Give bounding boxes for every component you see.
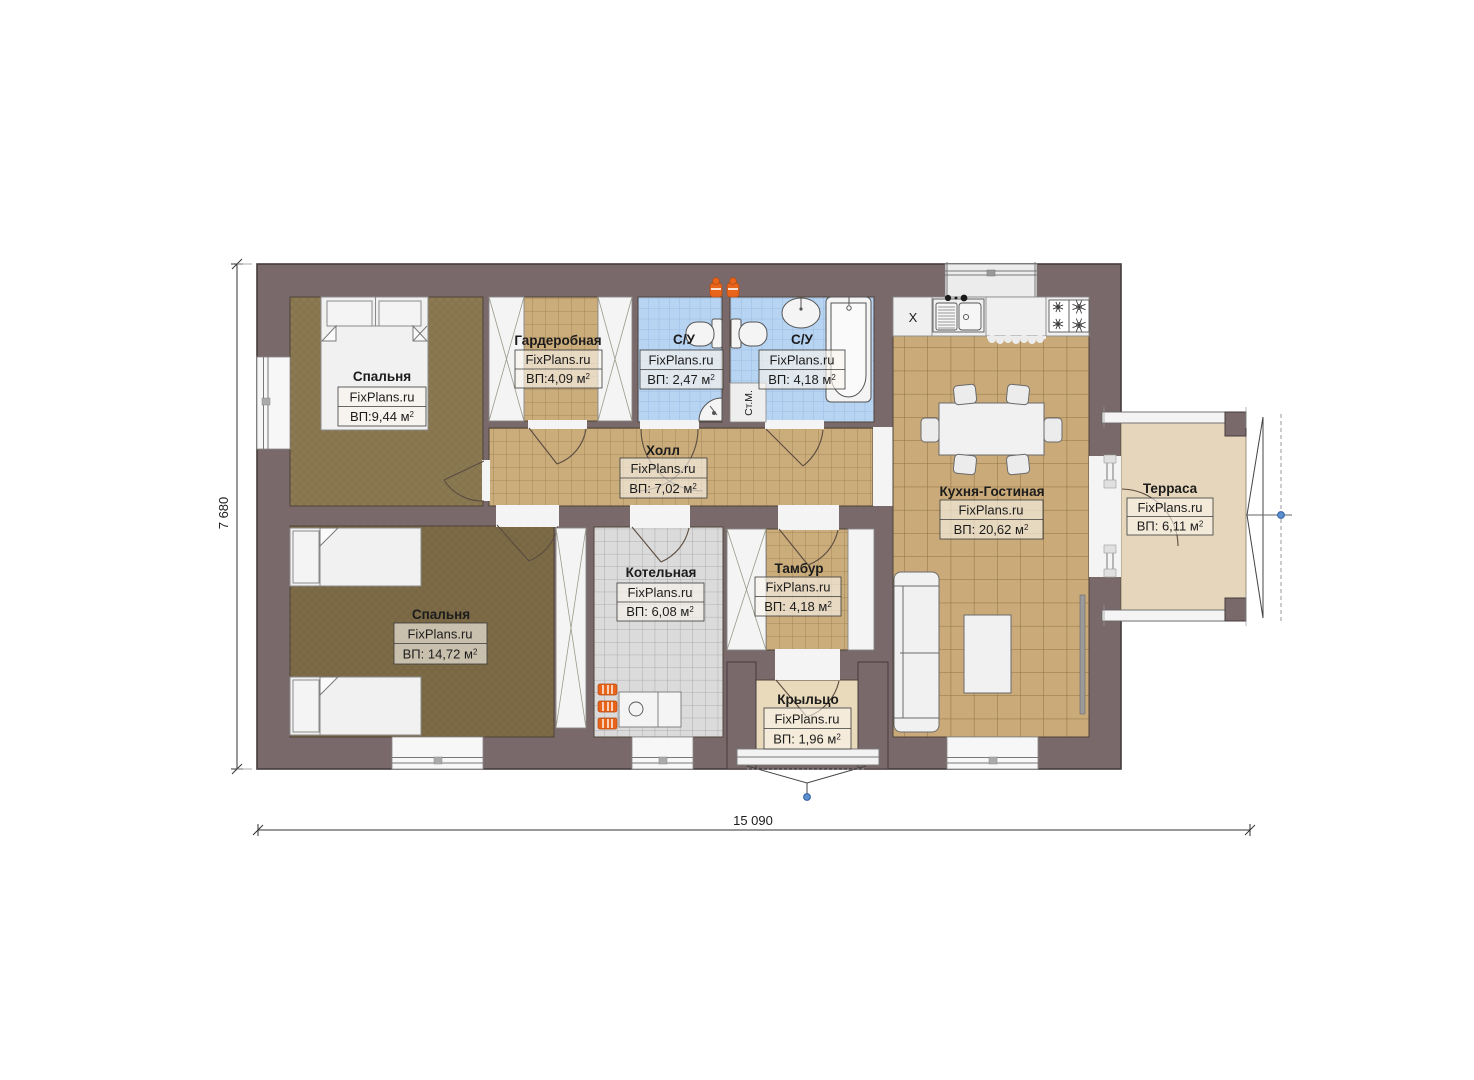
- svg-text:ВП: 6,08 м2: ВП: 6,08 м2: [626, 604, 694, 619]
- svg-text:ВП:4,09 м2: ВП:4,09 м2: [526, 371, 590, 386]
- svg-text:FixPlans.ru: FixPlans.ru: [630, 461, 695, 476]
- svg-text:FixPlans.ru: FixPlans.ru: [407, 627, 472, 642]
- svg-text:FixPlans.ru: FixPlans.ru: [648, 353, 713, 368]
- svg-text:ВП: 2,47 м2: ВП: 2,47 м2: [647, 372, 715, 387]
- svg-text:ВП: 14,72 м2: ВП: 14,72 м2: [403, 647, 478, 662]
- svg-text:FixPlans.ru: FixPlans.ru: [774, 712, 839, 727]
- svg-text:ВП: 4,18 м2: ВП: 4,18 м2: [768, 372, 836, 387]
- svg-text:ВП:9,44 м2: ВП:9,44 м2: [350, 409, 414, 424]
- svg-text:ВП: 20,62 м2: ВП: 20,62 м2: [954, 522, 1029, 537]
- svg-text:FixPlans.ru: FixPlans.ru: [1137, 500, 1202, 515]
- svg-text:Спальня: Спальня: [353, 369, 411, 384]
- svg-text:Ст.М.: Ст.М.: [743, 390, 755, 416]
- svg-text:FixPlans.ru: FixPlans.ru: [349, 390, 414, 405]
- svg-text:X: X: [909, 310, 918, 325]
- svg-text:15 090: 15 090: [733, 813, 773, 828]
- svg-text:Гардеробная: Гардеробная: [514, 333, 601, 348]
- svg-text:Спальня: Спальня: [412, 607, 470, 622]
- svg-text:ВП: 4,18 м2: ВП: 4,18 м2: [764, 599, 832, 614]
- svg-text:Котельная: Котельная: [626, 565, 697, 580]
- svg-text:Терраса: Терраса: [1143, 481, 1198, 496]
- svg-text:FixPlans.ru: FixPlans.ru: [525, 352, 590, 367]
- svg-text:Холл: Холл: [646, 443, 680, 458]
- svg-text:FixPlans.ru: FixPlans.ru: [958, 503, 1023, 518]
- svg-text:С/У: С/У: [673, 332, 696, 347]
- svg-text:7 680: 7 680: [216, 497, 231, 530]
- svg-text:Тамбур: Тамбур: [775, 561, 824, 576]
- svg-text:Кухня-Гостиная: Кухня-Гостиная: [940, 484, 1045, 499]
- svg-text:ВП: 6,11 м2: ВП: 6,11 м2: [1137, 519, 1204, 534]
- svg-text:FixPlans.ru: FixPlans.ru: [627, 585, 692, 600]
- svg-text:FixPlans.ru: FixPlans.ru: [769, 353, 834, 368]
- svg-text:ВП: 1,96 м2: ВП: 1,96 м2: [773, 732, 841, 747]
- svg-text:С/У: С/У: [791, 332, 814, 347]
- svg-text:Крыльцо: Крыльцо: [777, 692, 838, 707]
- svg-text:FixPlans.ru: FixPlans.ru: [765, 580, 830, 595]
- svg-text:ВП: 7,02 м2: ВП: 7,02 м2: [629, 481, 697, 496]
